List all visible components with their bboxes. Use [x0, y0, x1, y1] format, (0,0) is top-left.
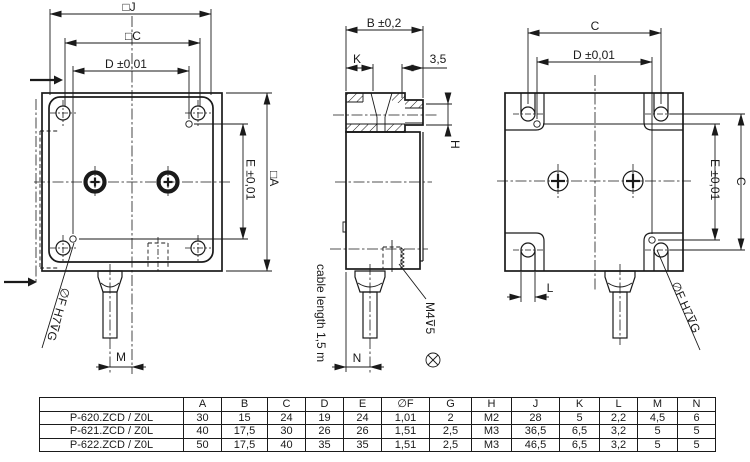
col-header-model [40, 398, 184, 412]
col-header: J [512, 398, 560, 412]
col-header: G [430, 398, 472, 412]
dim-label-c-top: C [591, 19, 600, 33]
dim-label-l: L [547, 281, 554, 295]
dim-h: H [426, 95, 462, 149]
locating-hole [534, 121, 540, 127]
col-header: C [268, 398, 306, 412]
hidden-thread-hole [148, 237, 168, 273]
technical-drawing-sheet: □J □C D ±0,01 E ±0,01 □A [0, 0, 750, 462]
locating-hole [70, 236, 76, 242]
col-header: E [344, 398, 382, 412]
locating-hole [186, 121, 192, 127]
dim-label-h: H [448, 140, 462, 149]
dim-j: □J [50, 0, 211, 95]
col-header: ∅F [382, 398, 430, 412]
col-header: B [222, 398, 268, 412]
col-header: N [678, 398, 716, 412]
col-header: M [638, 398, 678, 412]
drawing-canvas: □J □C D ±0,01 E ±0,01 □A [0, 0, 750, 462]
dim-label-j: □J [122, 0, 135, 14]
hole-callout-label: ∅F H7⊽G [44, 286, 73, 342]
dim-label-e: E ±0,01 [708, 159, 722, 201]
dim-label-d: D ±0,01 [105, 57, 147, 71]
dim-label-d: D ±0,01 [573, 48, 615, 62]
model-name: P-621.ZCD / Z0L [40, 425, 184, 439]
cable-connector [605, 264, 635, 345]
hole-callout: ∅F H7⊽G [657, 250, 703, 350]
col-header: A [184, 398, 222, 412]
corner-holes [50, 100, 211, 261]
locating-hole [649, 237, 655, 243]
ground-symbol [426, 353, 440, 367]
dim-label-a: □A [267, 171, 281, 186]
col-header: D [306, 398, 344, 412]
side-view: B ±0,2 K 3,5 H N [314, 16, 462, 374]
dim-label-c-right: C [734, 177, 748, 186]
thread-hole-hidden [383, 240, 404, 272]
dim-label-k: K [353, 52, 361, 66]
col-header: K [560, 398, 600, 412]
table-row: P-622.ZCD / Z0L 50 17,5 40 35 35 1,51 2,… [40, 438, 716, 452]
dim-3-5: 3,5 [402, 52, 447, 98]
thread-callout: M4⊽5 [399, 264, 440, 367]
dim-label-3-5: 3,5 [430, 52, 447, 66]
dim-d: D ±0,01 [73, 57, 189, 234]
model-name: P-622.ZCD / Z0L [40, 438, 184, 452]
col-header: H [472, 398, 512, 412]
dim-label-m: M [116, 350, 126, 364]
table-header-row: A B C D E ∅F G H J K L M N [40, 398, 716, 412]
table-row: P-621.ZCD / Z0L 40 17,5 30 26 26 1,51 2,… [40, 425, 716, 439]
dim-l: L [507, 272, 554, 302]
hole-callout-label: ∅F H7⊽G [668, 280, 703, 336]
dim-m: M [96, 350, 146, 367]
dimension-table: A B C D E ∅F G H J K L M N P-620.ZCD / Z… [39, 397, 716, 452]
view-direction-arrow [4, 76, 63, 287]
model-name: P-620.ZCD / Z0L [40, 411, 184, 425]
dim-label-c: □C [125, 29, 141, 43]
top-view: □J □C D ±0,01 E ±0,01 □A [4, 0, 281, 374]
dim-label-b: B ±0,2 [367, 16, 402, 30]
dim-label-n: N [353, 351, 362, 365]
table-row: P-620.ZCD / Z0L 30 15 24 19 24 1,01 2 M2… [40, 411, 716, 425]
bottom-view: C D ±0,01 E ±0,01 C L ∅F [497, 19, 748, 350]
thread-callout-label: M4⊽5 [423, 302, 437, 334]
dim-k: K [346, 52, 373, 91]
hole-callout: ∅F H7⊽G [42, 243, 74, 348]
col-header: L [600, 398, 638, 412]
platform-outline [49, 97, 213, 262]
cable-length-note: cable length 1,5 m [314, 264, 328, 362]
dim-label-e: E ±0,01 [244, 159, 258, 201]
dim-d: D ±0,01 [537, 48, 652, 234]
